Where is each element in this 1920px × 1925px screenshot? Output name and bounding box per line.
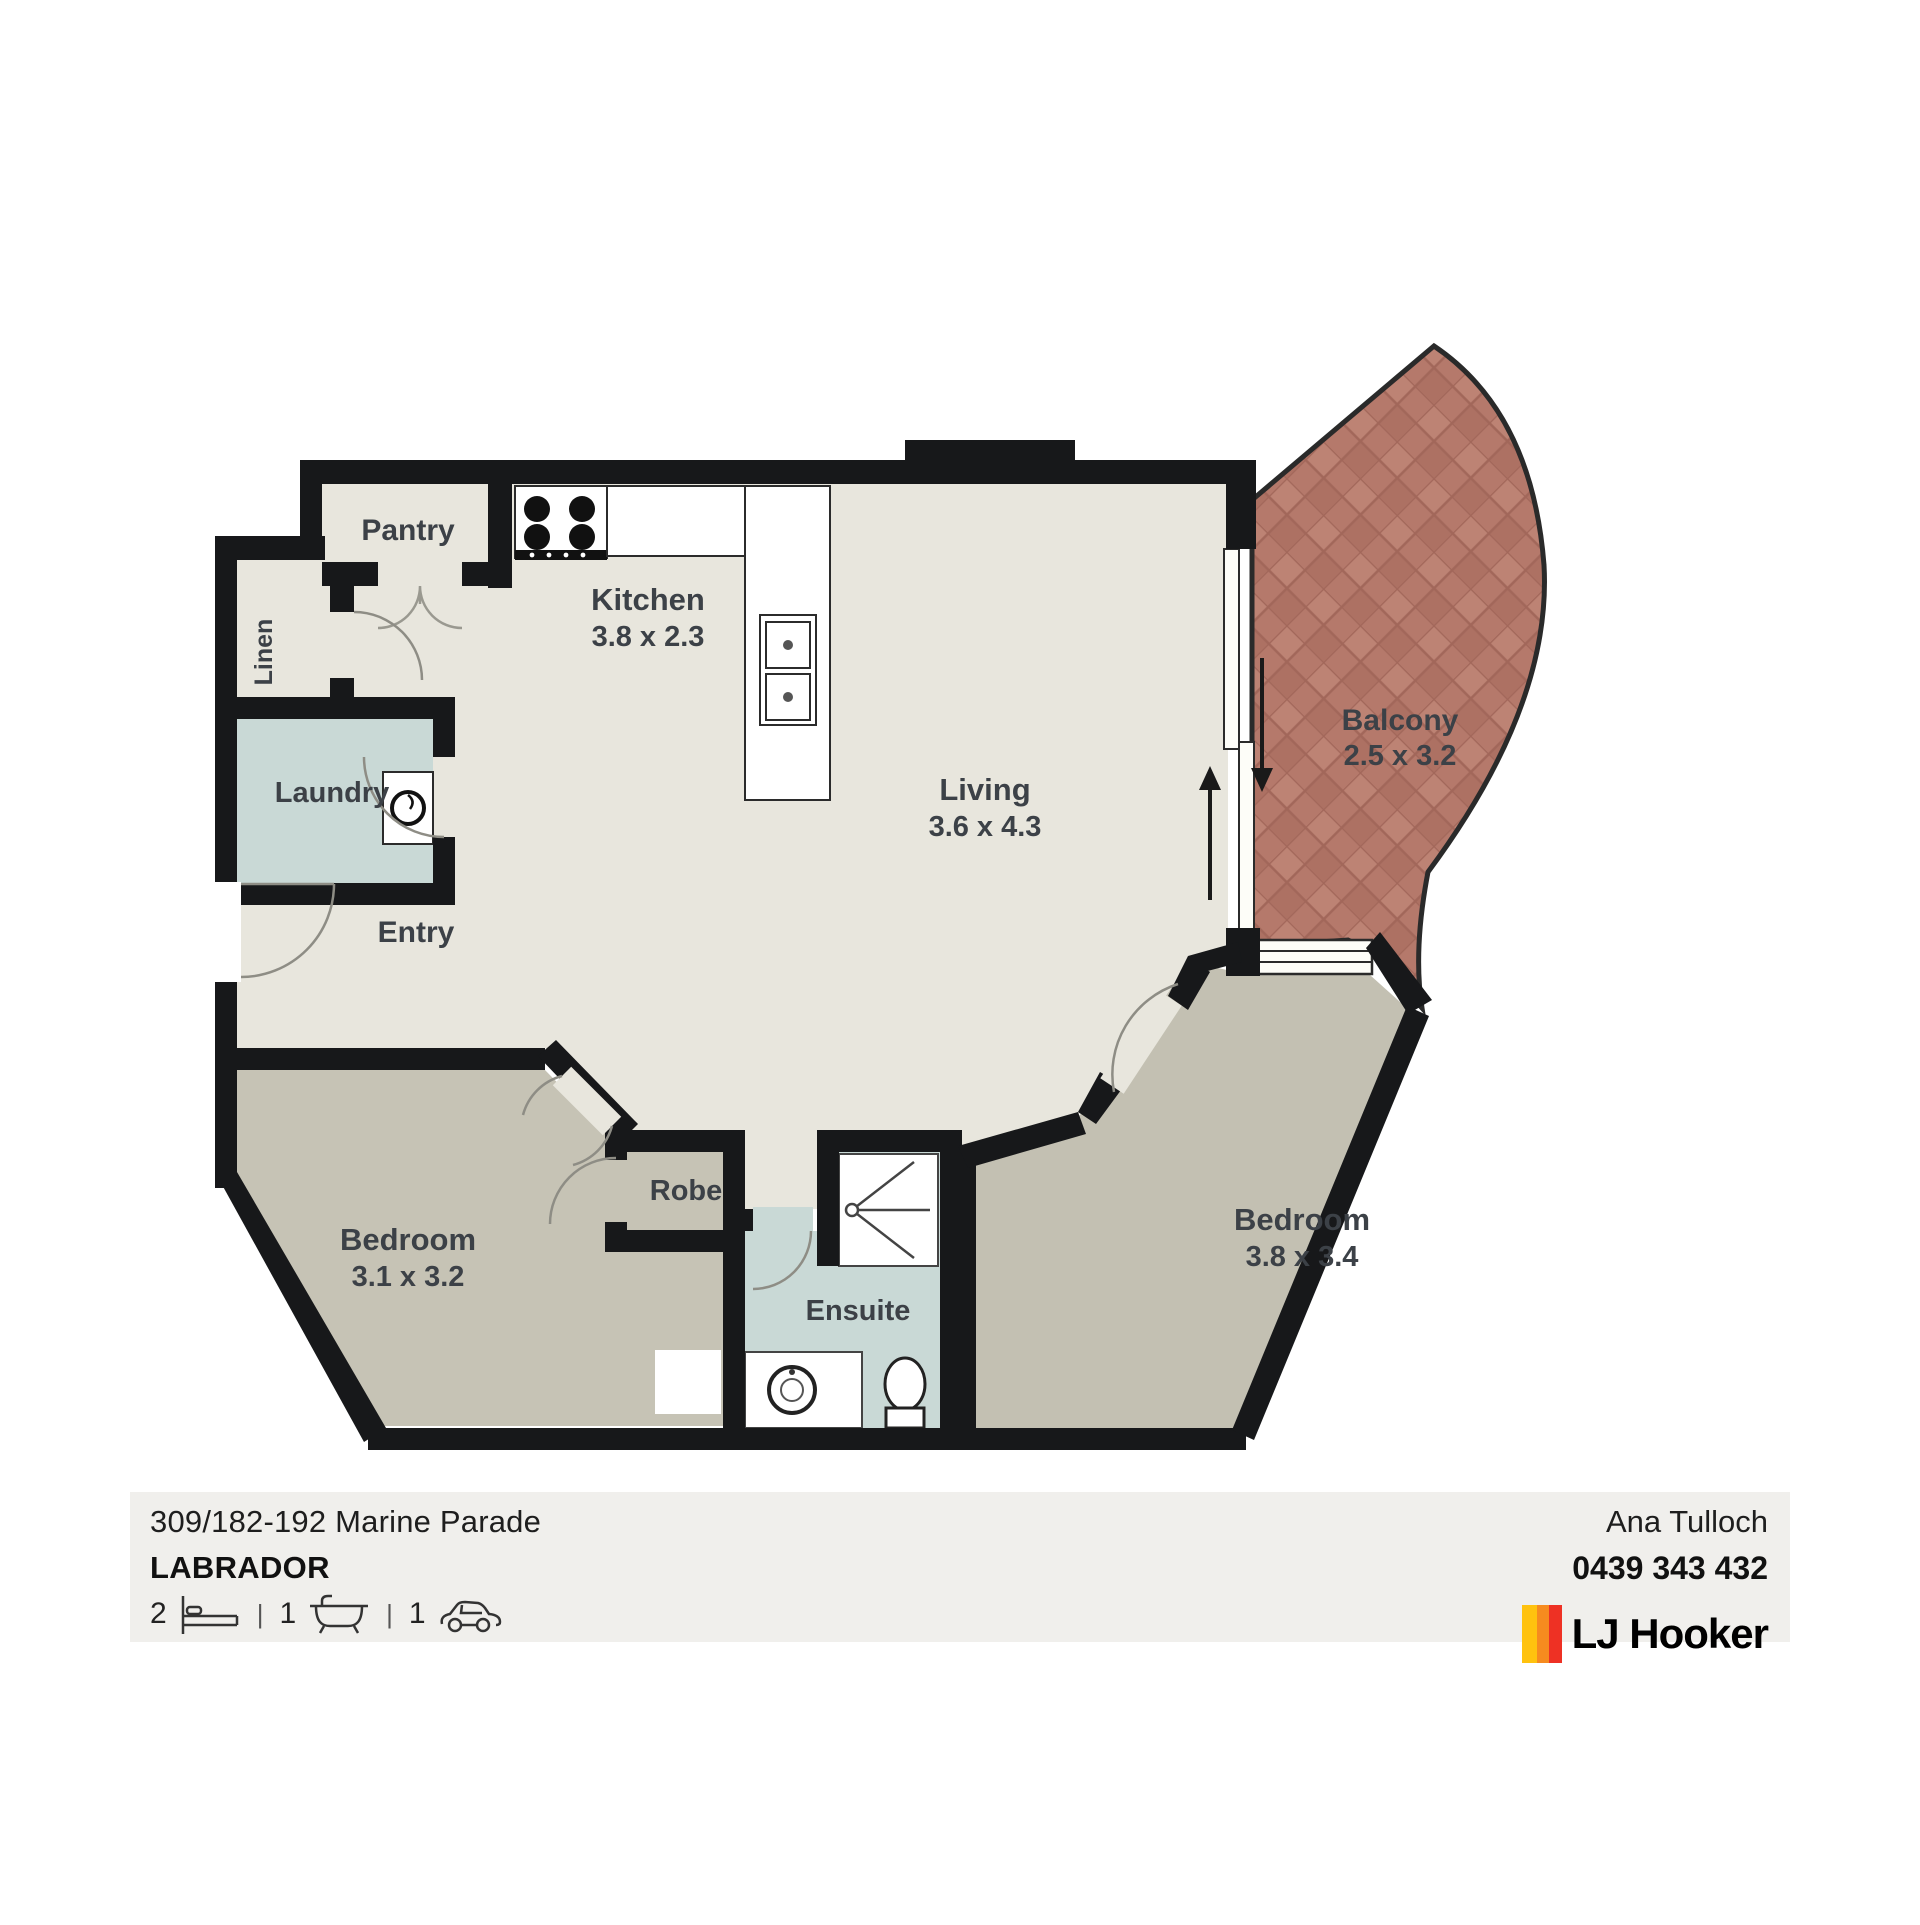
property-info: 309/182-192 Marine Parade LABRADOR [150, 1504, 541, 1586]
separator: | [257, 1599, 264, 1630]
ensuite-label: Ensuite [806, 1295, 911, 1327]
bedroom1-dims: 3.1 x 3.2 [352, 1261, 465, 1293]
footer-band: 309/182-192 Marine Parade LABRADOR 2 | 1… [130, 1492, 1790, 1642]
balcony-dims: 2.5 x 3.2 [1344, 740, 1457, 772]
entry-door-opening [213, 882, 241, 982]
floorplan-page: Pantry Linen Kitchen 3.8 x 2.3 Living 3.… [0, 0, 1920, 1920]
kitchen-counter [607, 486, 745, 556]
entry-label: Entry [378, 916, 455, 949]
kitchen-label: Kitchen [591, 582, 705, 617]
bedroom2-window [1256, 940, 1372, 974]
ljhooker-stripes-icon [1522, 1605, 1562, 1663]
bedroom2-label: Bedroom [1234, 1202, 1370, 1237]
balcony-floor [1252, 346, 1544, 1008]
cars-count: 1 [409, 1597, 426, 1631]
agent-info: Ana Tulloch 0439 343 432 LJ Hooker [1522, 1504, 1768, 1663]
balcony-label: Balcony [1342, 704, 1459, 737]
brand-name: LJ Hooker [1572, 1610, 1768, 1658]
living-dims: 3.6 x 4.3 [929, 811, 1042, 843]
bedroom1-label: Bedroom [340, 1222, 476, 1257]
agent-name: Ana Tulloch [1522, 1504, 1768, 1540]
property-address: 309/182-192 Marine Parade [150, 1504, 541, 1540]
bath-icon [308, 1592, 370, 1636]
property-suburb: LABRADOR [150, 1550, 541, 1586]
robe-label: Robe [650, 1175, 723, 1207]
baths-count: 1 [279, 1597, 296, 1631]
beds-count: 2 [150, 1597, 167, 1631]
toilet [885, 1358, 925, 1428]
bed-icon [179, 1592, 241, 1636]
bedroom1-cupboard [655, 1350, 721, 1414]
laundry-label: Laundry [275, 777, 389, 809]
stove [515, 486, 607, 558]
living-label: Living [939, 772, 1030, 807]
bedroom2-dims: 3.8 x 3.4 [1246, 1241, 1359, 1273]
separator: | [386, 1599, 393, 1630]
kitchen-dims: 3.8 x 2.3 [592, 621, 705, 653]
pantry-label: Pantry [361, 514, 455, 547]
ensuite-door-opening [753, 1207, 813, 1233]
agent-phone: 0439 343 432 [1522, 1550, 1768, 1587]
linen-label: Linen [250, 619, 278, 686]
brand-logo: LJ Hooker [1522, 1605, 1768, 1663]
car-icon [438, 1592, 504, 1636]
laundry-fixtures [383, 772, 433, 844]
property-features: 2 | 1 | 1 [150, 1592, 504, 1636]
